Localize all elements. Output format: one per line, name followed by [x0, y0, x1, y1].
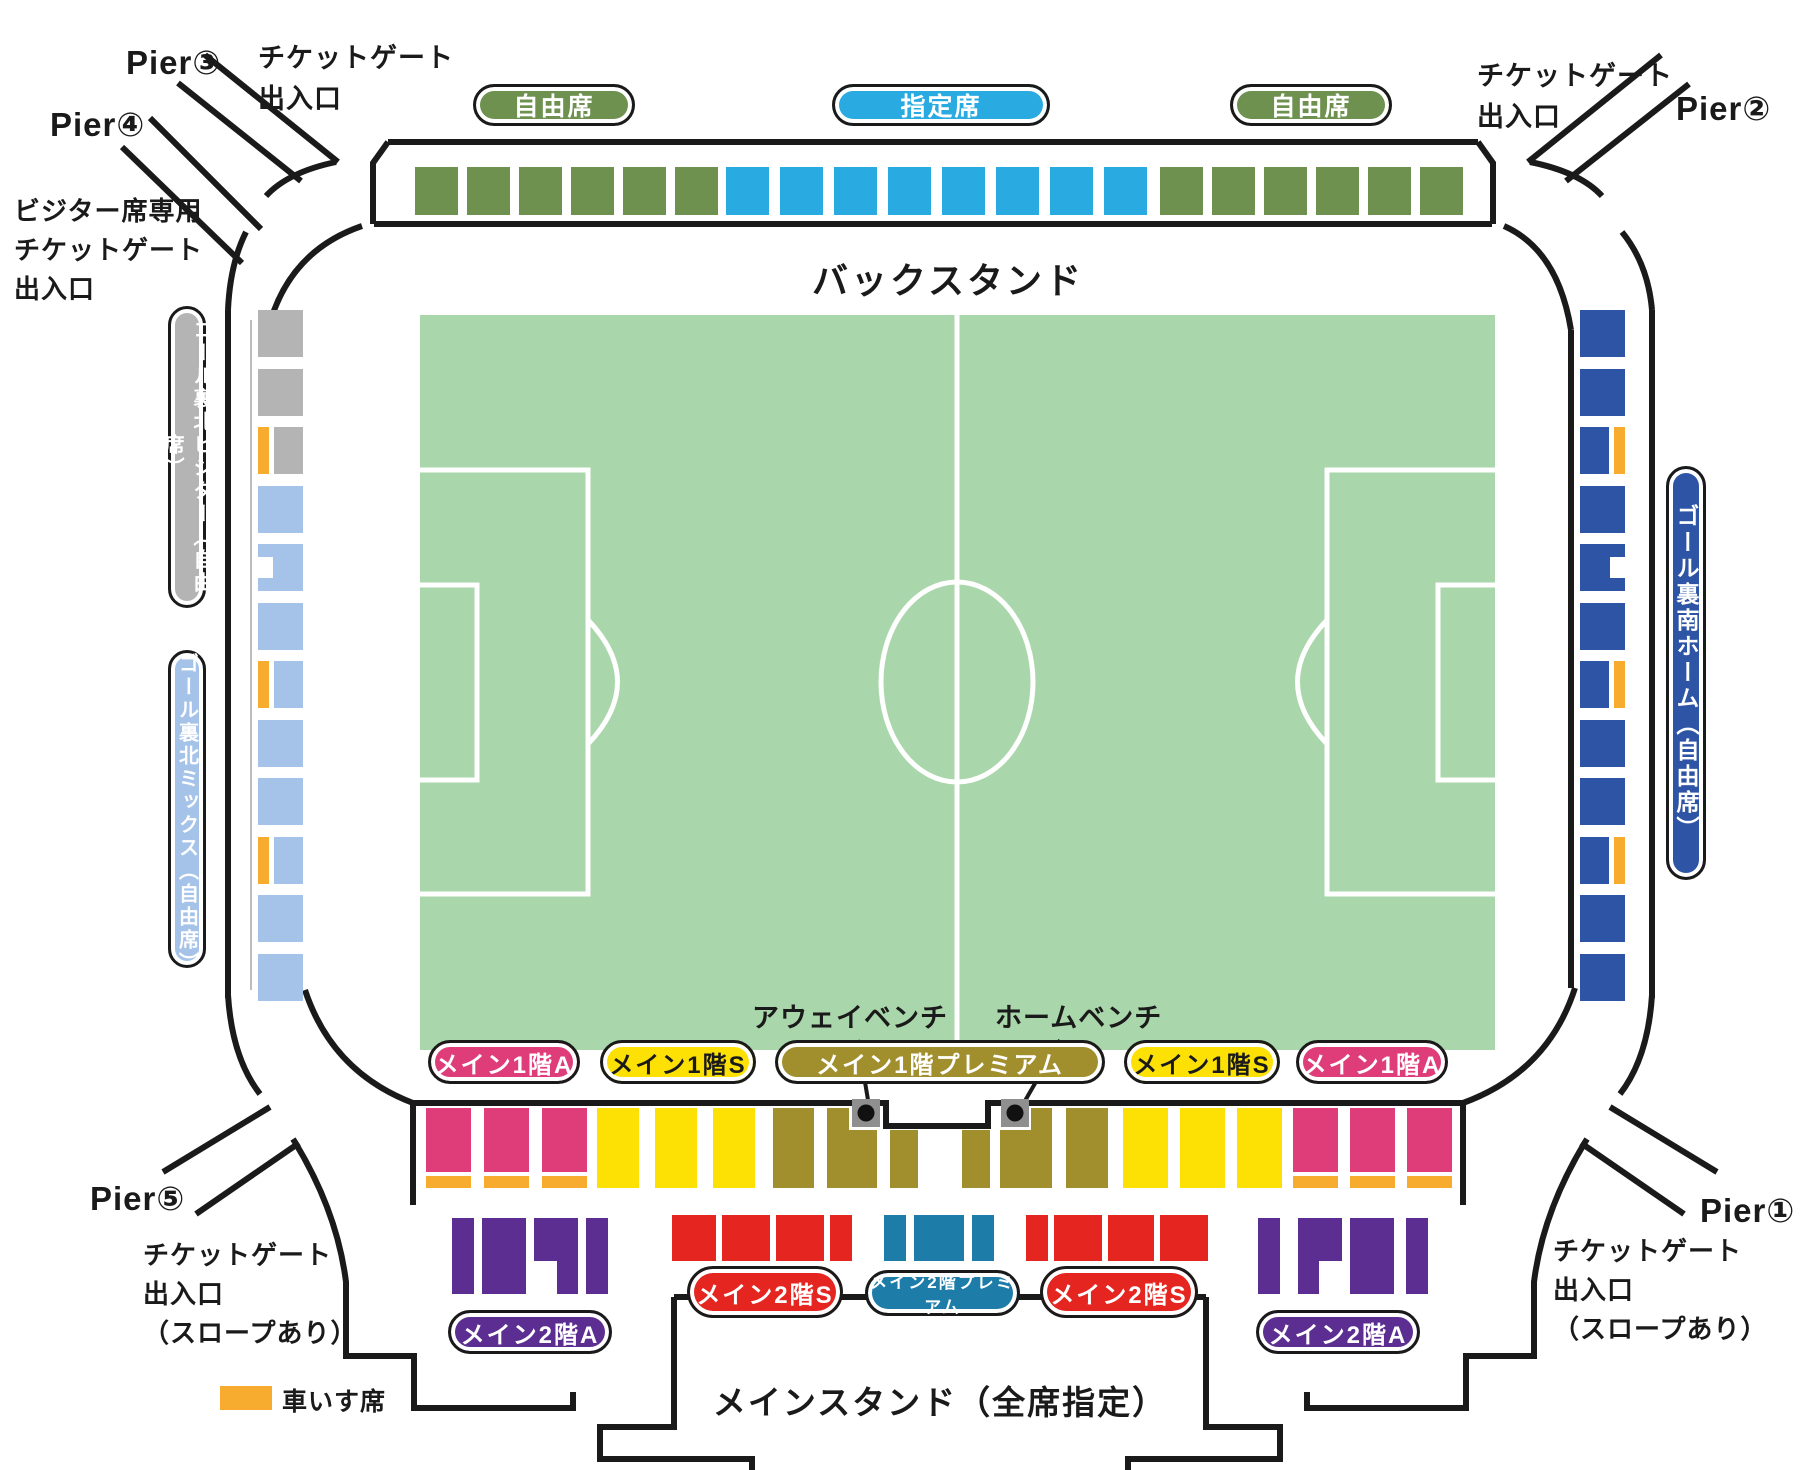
seat-block-goal-north-mix [274, 661, 303, 708]
seat-block-main1-premium [827, 1108, 849, 1130]
pill-goal-south-home: ゴール裏南ホーム（自由席） [1666, 466, 1706, 880]
seat-block-main2-a [1258, 1218, 1280, 1294]
seat-block-wheelchair [1407, 1176, 1452, 1188]
seat-block-back-free [1420, 167, 1463, 215]
soccer-field [420, 315, 1495, 1050]
seat-block-goal-south-home [1580, 837, 1609, 884]
ticket-gate-slope-right-label: チケットゲート 出入口 （スロープあり） [1553, 1232, 1767, 1349]
seat-block-goal-north-mix [258, 603, 303, 650]
pier3-label: Pier③ [126, 38, 221, 88]
seat-block-back-free [415, 167, 458, 215]
seat-block-back-reserved [888, 167, 931, 215]
seat-block-goal-north-mix [258, 720, 303, 767]
seat-block-goal-south-home [1580, 895, 1625, 942]
seat-block-back-reserved [834, 167, 877, 215]
pill-main1-a-left: メイン1階A [428, 1040, 580, 1084]
seat-block-back-free [1264, 167, 1307, 215]
seat-block-notch [258, 557, 273, 578]
back-stand-title: バックスタンド [748, 254, 1148, 308]
seat-block-goal-south-home [1580, 603, 1625, 650]
seat-block-main1-premium [1066, 1108, 1108, 1188]
pier1-label: Pier① [1700, 1186, 1795, 1236]
seat-block-wheelchair [258, 837, 269, 884]
seat-block-back-reserved [1050, 167, 1093, 215]
seat-block-main1-premium [962, 1130, 990, 1188]
away-bench-icon [852, 1099, 880, 1127]
visitor-gate-label: ビジター席専用 チケットゲート 出入口 [14, 192, 203, 309]
seat-block-main1-premium [1031, 1108, 1052, 1130]
seat-block-wheelchair [1350, 1176, 1395, 1188]
seat-block-main1-premium [827, 1130, 877, 1188]
ticket-gate-slope-left-label: チケットゲート 出入口 （スロープあり） [143, 1236, 357, 1353]
pill-main2-a-right: メイン2階A [1256, 1310, 1420, 1354]
seat-block-main1-premium [890, 1130, 918, 1188]
seat-block-notch [1319, 1261, 1342, 1294]
seat-block-back-reserved [942, 167, 985, 215]
seat-block-back-free [467, 167, 510, 215]
seat-block-main1-premium [773, 1108, 814, 1188]
pill-main1-s-right: メイン1階S [1124, 1040, 1280, 1084]
seat-block-back-free [1316, 167, 1359, 215]
seat-block-goal-south-home [1580, 369, 1625, 416]
seat-block-goal-north-mix [274, 837, 303, 884]
seat-block-main1-a [542, 1108, 587, 1172]
seat-block-main1-s [597, 1108, 639, 1188]
seat-block-back-reserved [1104, 167, 1147, 215]
pill-back-reserved: 指定席 [832, 84, 1050, 126]
seat-block-goal-south-home [1580, 486, 1625, 533]
pill-back-free-right: 自由席 [1230, 84, 1392, 126]
seat-block-main1-premium [1000, 1130, 1052, 1188]
seat-block-main2-premium [884, 1215, 906, 1261]
seat-block-main1-a [1407, 1108, 1452, 1172]
seat-block-back-free [1212, 167, 1255, 215]
pill-main2-premium: メイン2階プレミアム [865, 1270, 1020, 1316]
seat-block-main2-s [672, 1215, 716, 1261]
seat-block-goal-south-home [1580, 954, 1625, 1001]
seat-block-wheelchair [1614, 837, 1625, 884]
seat-block-back-free [571, 167, 614, 215]
seat-block-main2-premium [972, 1215, 994, 1261]
seat-block-goal-south-home [1580, 427, 1609, 474]
seat-block-main1-a [1293, 1108, 1338, 1172]
seat-block-notch [1610, 557, 1625, 578]
home-bench-label: ホームベンチ [995, 998, 1162, 1039]
pill-main1-a-right: メイン1階A [1296, 1040, 1448, 1084]
wheelchair-legend-swatch [220, 1386, 272, 1410]
seat-block-main2-s [1026, 1215, 1048, 1261]
stadium-seating-map: 自由席指定席自由席ゴール裏北ビジター（自由席）ゴール裏北ミックス（自由席）ゴール… [0, 0, 1800, 1470]
seat-block-wheelchair [426, 1176, 471, 1188]
pill-main1-s-left: メイン1階S [600, 1040, 756, 1084]
seat-block-back-free [1160, 167, 1203, 215]
seat-block-wheelchair [542, 1176, 587, 1188]
pill-main2-s-right: メイン2階S [1040, 1266, 1198, 1318]
seat-block-main1-s [655, 1108, 697, 1188]
seat-block-back-free [623, 167, 666, 215]
pier2-label: Pier② [1676, 84, 1771, 134]
seat-block-goal-north-visitor [258, 369, 303, 416]
seat-block-wheelchair [258, 427, 269, 474]
seat-block-main2-a [586, 1218, 608, 1294]
seat-block-wheelchair [1293, 1176, 1338, 1188]
away-bench-label: アウェイベンチ [752, 998, 948, 1039]
seat-block-goal-south-home [1580, 720, 1625, 767]
seat-block-back-reserved [780, 167, 823, 215]
pier5-label: Pier⑤ [90, 1174, 185, 1224]
seat-block-back-reserved [996, 167, 1039, 215]
seat-block-goal-south-home [1580, 310, 1625, 357]
seat-block-main2-s [1108, 1215, 1154, 1261]
seat-block-goal-north-mix [258, 954, 303, 1001]
seat-block-main1-s [713, 1108, 755, 1188]
main-stand-title: メインスタンド（全席指定） [690, 1378, 1190, 1428]
pill-goal-north-mix: ゴール裏北ミックス（自由席） [168, 650, 206, 968]
seat-block-main2-s [1054, 1215, 1102, 1261]
seat-block-back-reserved [726, 167, 769, 215]
seat-block-main1-a [1350, 1108, 1395, 1172]
seat-block-goal-north-mix [258, 486, 303, 533]
seat-block-main1-s [1180, 1108, 1225, 1188]
seat-block-wheelchair [1614, 427, 1625, 474]
pill-main2-a-left: メイン2階A [448, 1310, 612, 1354]
seat-block-main1-s [1123, 1108, 1168, 1188]
seat-block-wheelchair [258, 661, 269, 708]
pill-main1-premium: メイン1階プレミアム [775, 1040, 1105, 1084]
seat-block-main2-s [1160, 1215, 1208, 1261]
seat-block-goal-north-mix [258, 778, 303, 825]
seat-block-main1-s [1237, 1108, 1282, 1188]
seat-block-wheelchair [484, 1176, 529, 1188]
seat-block-goal-south-home [1580, 778, 1625, 825]
seat-block-back-free [675, 167, 718, 215]
seat-block-goal-south-home [1580, 661, 1609, 708]
seat-block-main2-a [482, 1218, 526, 1294]
pier4-label: Pier④ [50, 100, 145, 150]
seat-block-wheelchair [1614, 661, 1625, 708]
seat-block-main1-a [484, 1108, 529, 1172]
seat-block-main2-s [722, 1215, 770, 1261]
seat-block-back-free [1368, 167, 1411, 215]
home-bench-icon [1001, 1099, 1029, 1127]
wheelchair-legend-label: 車いす席 [282, 1384, 386, 1422]
seat-block-main1-a [426, 1108, 471, 1172]
seat-block-main2-s [830, 1215, 852, 1261]
pill-main2-s-left: メイン2階S [687, 1266, 843, 1318]
seat-block-main2-a [452, 1218, 474, 1294]
pill-back-free-left: 自由席 [473, 84, 635, 126]
seat-block-goal-north-visitor [258, 310, 303, 357]
seat-block-main2-a [1350, 1218, 1394, 1294]
seat-block-main2-premium [914, 1215, 964, 1261]
seat-block-goal-north-visitor [274, 427, 303, 474]
seat-block-main2-s [776, 1215, 824, 1261]
seat-block-notch [534, 1261, 557, 1294]
seat-block-back-free [519, 167, 562, 215]
pill-goal-north-visitor: ゴール裏北ビジター（自由席） [168, 306, 206, 608]
seat-block-main2-a [1406, 1218, 1428, 1294]
seat-block-goal-north-mix [258, 895, 303, 942]
ticket-gate-top-right-label: チケットゲート 出入口 [1477, 56, 1673, 137]
ticket-gate-top-left-label: チケットゲート 出入口 [258, 38, 454, 119]
